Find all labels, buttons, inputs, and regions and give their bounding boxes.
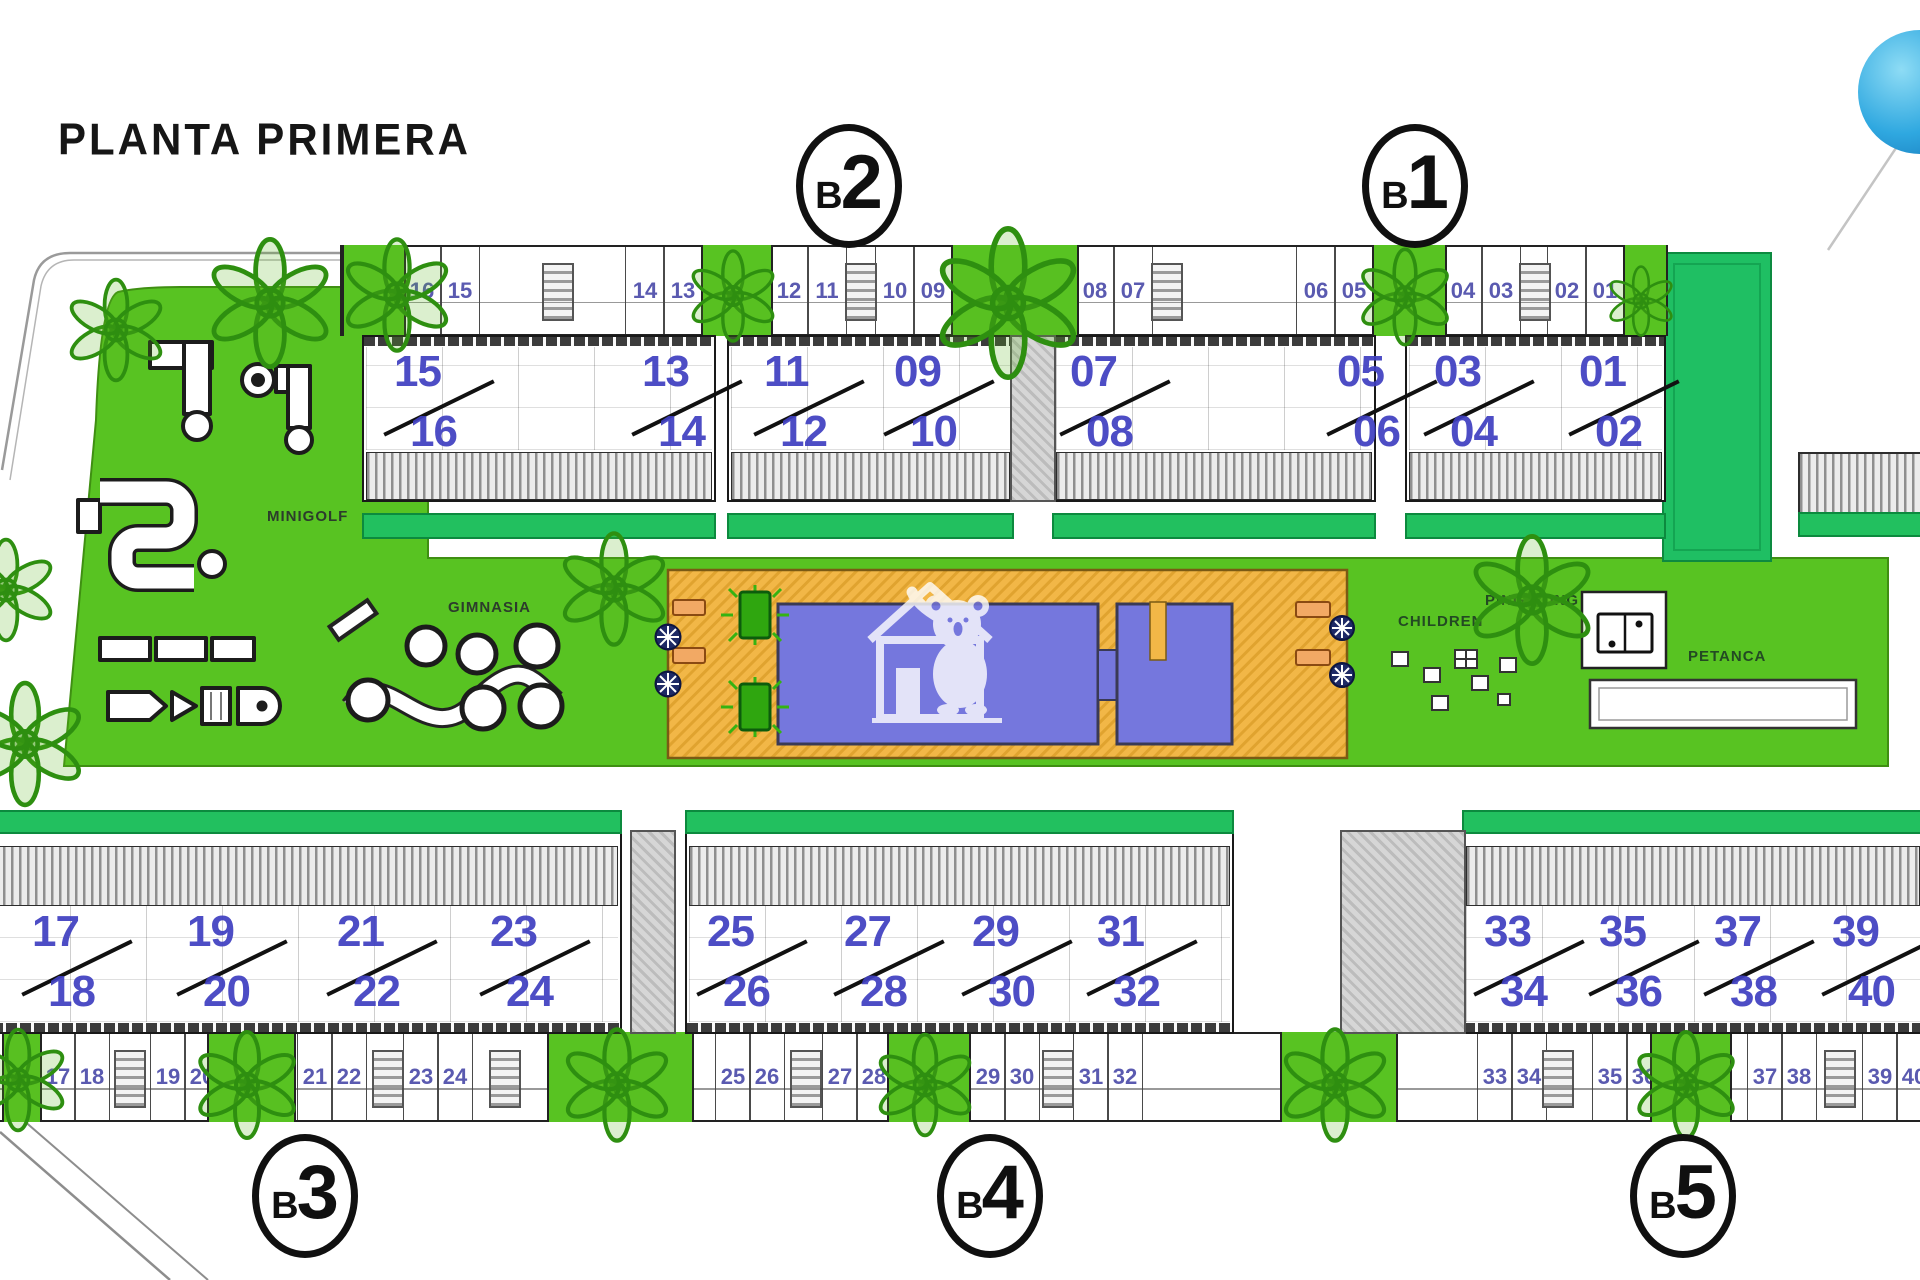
unit-number: 33 bbox=[1484, 910, 1531, 954]
block-prefix: B bbox=[956, 1185, 983, 1228]
terrace-number-cell: 23 bbox=[403, 1034, 439, 1120]
block-digit: 4 bbox=[982, 1159, 1024, 1227]
terrace-garden-cell bbox=[887, 1032, 971, 1122]
stairs-icon bbox=[1824, 1050, 1856, 1108]
terrace-number-cell: 07 bbox=[1113, 247, 1153, 334]
block-digit: 5 bbox=[1675, 1159, 1717, 1227]
terrace-number-cell: 05 bbox=[1334, 247, 1374, 334]
stairs-icon bbox=[1042, 1050, 1074, 1108]
unit-number-pair: 2930 bbox=[970, 910, 1050, 1030]
stairs-icon bbox=[790, 1050, 822, 1108]
terrace-number-cell: 09 bbox=[913, 247, 953, 334]
unit-number: 32 bbox=[1113, 970, 1160, 1014]
terrace-number-cell: 01 bbox=[1585, 247, 1625, 334]
unit-number: 02 bbox=[1595, 410, 1642, 454]
block-prefix: B bbox=[271, 1185, 298, 1228]
corridor bbox=[1340, 830, 1466, 1034]
block-label-b5: B5 bbox=[1630, 1134, 1736, 1258]
garden-strip bbox=[1405, 513, 1666, 539]
unit-number: 01 bbox=[1579, 350, 1626, 394]
unit-number: 23 bbox=[490, 910, 537, 954]
terrace-garden-cell bbox=[701, 245, 773, 336]
unit-number-pair: 1314 bbox=[640, 350, 720, 470]
terrace-garden-cell bbox=[1280, 1032, 1398, 1122]
corridor bbox=[1010, 335, 1056, 502]
unit-number: 39 bbox=[1832, 910, 1879, 954]
amenity-label-gym: GIMNASIA bbox=[448, 599, 531, 616]
terrace-number-cell: 06 bbox=[1296, 247, 1336, 334]
unit-number: 04 bbox=[1450, 410, 1497, 454]
terrace-garden-cell bbox=[1372, 245, 1447, 336]
unit-number: 37 bbox=[1714, 910, 1761, 954]
unit-number: 10 bbox=[910, 410, 957, 454]
unit-number-pair: 2324 bbox=[488, 910, 568, 1030]
terrace-strip: 1718192021222324252627282930313233343536… bbox=[0, 1032, 1920, 1122]
unit-number: 29 bbox=[972, 910, 1019, 954]
block-digit: 3 bbox=[297, 1159, 339, 1227]
unit-number: 22 bbox=[353, 970, 400, 1014]
balcony-strip bbox=[0, 846, 618, 906]
terrace-number-cell: 30 bbox=[1004, 1034, 1040, 1120]
unit-number-pair: 1516 bbox=[392, 350, 472, 470]
block-prefix: B bbox=[1381, 175, 1408, 218]
terrace-number-cell: 11 bbox=[807, 247, 847, 334]
stairs-icon bbox=[1519, 263, 1551, 321]
unit-number-pair: 3738 bbox=[1712, 910, 1792, 1030]
terrace-number-cell: 37 bbox=[1747, 1034, 1783, 1120]
unit-number: 14 bbox=[658, 410, 705, 454]
park-inner-border bbox=[1673, 263, 1761, 551]
terrace-number-cell: 38 bbox=[1781, 1034, 1817, 1120]
unit-number: 07 bbox=[1070, 350, 1117, 394]
amenity-label-petanca: PETANCA bbox=[1688, 648, 1766, 665]
terrace-number-cell: 29 bbox=[970, 1034, 1006, 1120]
amenity-label-minigolf: MINIGOLF bbox=[267, 508, 348, 525]
unit-number: 24 bbox=[506, 970, 553, 1014]
terrace-number-cell: 12 bbox=[769, 247, 809, 334]
block-prefix: B bbox=[815, 175, 842, 218]
unit-number: 11 bbox=[764, 350, 809, 394]
garden-strip bbox=[1052, 513, 1376, 539]
page-title: PLANTA PRIMERA bbox=[58, 115, 471, 165]
stairs-icon bbox=[1151, 263, 1183, 321]
block-label-b2: B2 bbox=[796, 124, 902, 248]
block-prefix: B bbox=[1649, 1185, 1676, 1228]
unit-number: 18 bbox=[48, 970, 95, 1014]
park-area bbox=[1662, 252, 1772, 562]
ping-pong-table-icon bbox=[1582, 592, 1666, 668]
terrace-number-cell: 31 bbox=[1073, 1034, 1109, 1120]
terrace-number-cell: 26 bbox=[749, 1034, 785, 1120]
terrace-number-cell: 10 bbox=[875, 247, 915, 334]
unit-number: 38 bbox=[1730, 970, 1777, 1014]
unit-number-pair: 1920 bbox=[185, 910, 265, 1030]
unit-number: 16 bbox=[410, 410, 457, 454]
unit-number: 21 bbox=[337, 910, 384, 954]
kids-pool bbox=[1117, 604, 1232, 744]
terrace-garden-cell bbox=[951, 245, 1079, 336]
kids-pool-divider bbox=[1150, 602, 1166, 660]
unit-number: 34 bbox=[1500, 970, 1547, 1014]
unit-number: 36 bbox=[1615, 970, 1662, 1014]
unit-number: 09 bbox=[894, 350, 941, 394]
unit-number: 17 bbox=[32, 910, 79, 954]
unit-number: 12 bbox=[780, 410, 827, 454]
garden-strip bbox=[362, 513, 716, 539]
unit-number-pair: 0910 bbox=[892, 350, 972, 470]
terrace-number-cell: 33 bbox=[1477, 1034, 1513, 1120]
terrace-garden-cell bbox=[1650, 1032, 1732, 1122]
terrace-number-cell: 32 bbox=[1107, 1034, 1143, 1120]
terrace-number-cell: 21 bbox=[297, 1034, 333, 1120]
unit-number: 35 bbox=[1599, 910, 1646, 954]
unit-number: 19 bbox=[187, 910, 234, 954]
unit-number: 27 bbox=[844, 910, 891, 954]
terrace-number-cell: 15 bbox=[440, 247, 480, 334]
terrace-number-cell: 39 bbox=[1862, 1034, 1898, 1120]
terrace-garden-cell bbox=[547, 1032, 694, 1122]
stairs-icon bbox=[1542, 1050, 1574, 1108]
unit-number-pair: 3132 bbox=[1095, 910, 1175, 1030]
terrace-number-cell: 40 bbox=[1896, 1034, 1920, 1120]
unit-number: 05 bbox=[1337, 350, 1384, 394]
terrace-garden-cell bbox=[1623, 245, 1668, 336]
floor-plan-canvas: PLANTA PRIMERA B2 B1 B3 B4 B5 MINIGOLF G… bbox=[0, 0, 1920, 1280]
terrace-number-cell: 18 bbox=[74, 1034, 110, 1120]
corridor bbox=[630, 830, 676, 1034]
garden-strip bbox=[727, 513, 1014, 539]
stairs-icon bbox=[489, 1050, 521, 1108]
unit-number-pair: 1112 bbox=[762, 350, 842, 470]
block-digit: 2 bbox=[841, 149, 883, 217]
site-boundary-line bbox=[0, 1100, 208, 1280]
unit-number-pair: 1718 bbox=[30, 910, 110, 1030]
stairs-icon bbox=[542, 263, 574, 321]
garden-strip bbox=[1462, 810, 1920, 834]
unit-number: 03 bbox=[1434, 350, 1481, 394]
terrace-number-cell: 19 bbox=[150, 1034, 186, 1120]
unit-number-pair: 2728 bbox=[842, 910, 922, 1030]
block-label-b1: B1 bbox=[1362, 124, 1468, 248]
unit-number: 28 bbox=[860, 970, 907, 1014]
garden-strip bbox=[685, 810, 1234, 834]
unit-number-pair: 2526 bbox=[705, 910, 785, 1030]
block-digit: 1 bbox=[1407, 149, 1449, 217]
stairs-icon bbox=[114, 1050, 146, 1108]
terrace-number-cell: 16 bbox=[402, 247, 442, 334]
block-label-b4: B4 bbox=[937, 1134, 1043, 1258]
terrace-garden-cell bbox=[2, 1032, 42, 1122]
terrace-number-cell: 02 bbox=[1547, 247, 1587, 334]
amenity-label-ping-pong: PING PONG bbox=[1485, 592, 1579, 609]
unit-number-pair: 0102 bbox=[1577, 350, 1657, 470]
unit-number-pair: 2122 bbox=[335, 910, 415, 1030]
terrace-number-cell: 14 bbox=[625, 247, 665, 334]
neighbor-building-fragment bbox=[1798, 452, 1920, 514]
garden-strip bbox=[0, 810, 622, 834]
unit-number-pair: 3940 bbox=[1830, 910, 1910, 1030]
unit-number-pair: 0506 bbox=[1335, 350, 1415, 470]
unit-number: 40 bbox=[1848, 970, 1895, 1014]
unit-number-pair: 3536 bbox=[1597, 910, 1677, 1030]
unit-number: 06 bbox=[1353, 410, 1400, 454]
terrace-garden-cell bbox=[342, 245, 406, 336]
terrace-number-cell: 25 bbox=[715, 1034, 751, 1120]
terrace-number-cell: 04 bbox=[1443, 247, 1483, 334]
petanca-court bbox=[1590, 680, 1856, 728]
amenity-label-children: CHILDREN bbox=[1398, 613, 1484, 630]
unit-number: 31 bbox=[1097, 910, 1144, 954]
block-label-b3: B3 bbox=[252, 1134, 358, 1258]
terrace-number-cell: 27 bbox=[822, 1034, 858, 1120]
unit-number-pair: 0708 bbox=[1068, 350, 1148, 470]
unit-number-pair: 3334 bbox=[1482, 910, 1562, 1030]
terrace-number-cell: 17 bbox=[40, 1034, 76, 1120]
terrace-number-cell: 22 bbox=[331, 1034, 367, 1120]
terrace-strip: 16151413121110090807060504030201 bbox=[340, 245, 1666, 336]
stairs-icon bbox=[372, 1050, 404, 1108]
terrace-number-cell: 13 bbox=[663, 247, 703, 334]
site-boundary-line bbox=[0, 1132, 170, 1280]
balcony-strip bbox=[1466, 846, 1920, 906]
terrace-number-cell: 35 bbox=[1592, 1034, 1628, 1120]
unit-number: 25 bbox=[707, 910, 754, 954]
balcony-strip bbox=[689, 846, 1230, 906]
terrace-garden-cell bbox=[207, 1032, 296, 1122]
terrace-number-cell: 03 bbox=[1481, 247, 1521, 334]
unit-number: 30 bbox=[988, 970, 1035, 1014]
unit-number: 15 bbox=[394, 350, 441, 394]
terrace-number-cell: 24 bbox=[437, 1034, 473, 1120]
unit-number: 08 bbox=[1086, 410, 1133, 454]
stairs-icon bbox=[845, 263, 877, 321]
unit-number: 20 bbox=[203, 970, 250, 1014]
terrace-number-cell: 08 bbox=[1075, 247, 1115, 334]
unit-number-pair: 0304 bbox=[1432, 350, 1512, 470]
unit-number: 13 bbox=[642, 350, 689, 394]
garden-strip bbox=[1798, 512, 1920, 537]
unit-number: 26 bbox=[723, 970, 770, 1014]
